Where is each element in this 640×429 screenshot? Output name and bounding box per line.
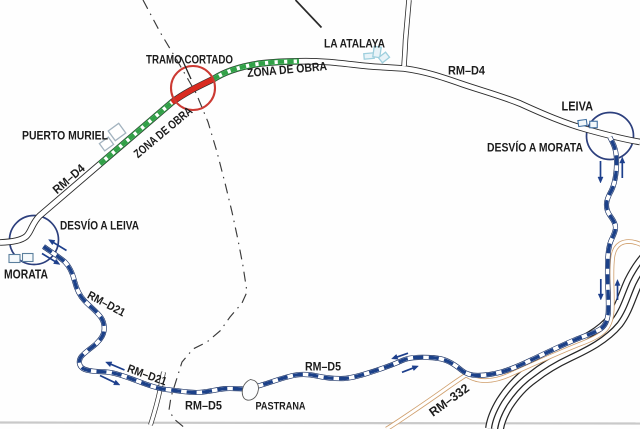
svg-text:MORATA: MORATA: [4, 268, 48, 282]
svg-text:RM–D5: RM–D5: [305, 362, 342, 374]
svg-text:PUERTO MURIEL: PUERTO MURIEL: [22, 131, 108, 143]
svg-text:TRAMO CORTADO: TRAMO CORTADO: [146, 53, 233, 67]
svg-text:RM–D4: RM–D4: [448, 66, 486, 78]
svg-text:RM–D5: RM–D5: [185, 401, 223, 413]
svg-text:PASTRANA: PASTRANA: [256, 401, 306, 413]
svg-text:LEIVA: LEIVA: [562, 99, 594, 114]
svg-text:DESVÍO A LEIVA: DESVÍO A LEIVA: [60, 220, 139, 233]
svg-text:DESVÍO A MORATA: DESVÍO A MORATA: [487, 142, 583, 155]
svg-text:LA ATALAYA: LA ATALAYA: [324, 39, 385, 51]
